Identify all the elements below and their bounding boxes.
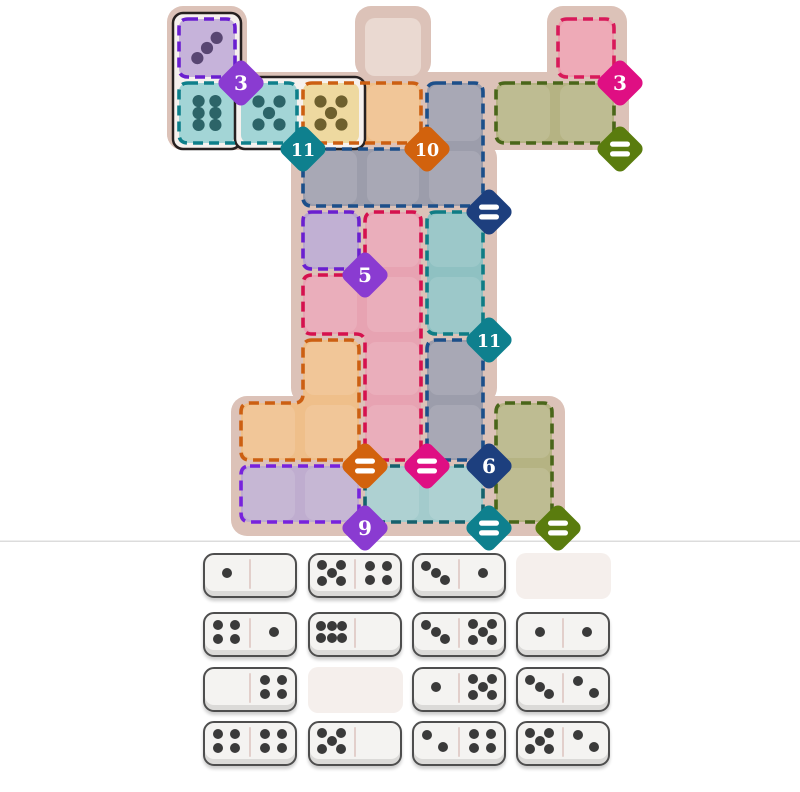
domino-pip: [365, 561, 375, 571]
domino-pip: [230, 729, 240, 739]
domino-pip: [230, 634, 240, 644]
domino-pip: [469, 743, 479, 753]
domino-pip: [222, 568, 232, 578]
domino-pip: [478, 568, 488, 578]
tray-domino-5-2[interactable]: [516, 721, 610, 766]
domino-divider: [458, 673, 460, 703]
domino-pip: [478, 682, 488, 692]
domino-pip: [213, 743, 223, 753]
tray-domino-1-5[interactable]: [412, 667, 506, 712]
domino-pip: [327, 568, 337, 578]
tray-domino-5-0[interactable]: [308, 721, 402, 766]
domino-pip: [421, 561, 431, 571]
domino-pip: [535, 682, 545, 692]
domino-pip: [269, 627, 279, 637]
domino-pip: [469, 729, 479, 739]
domino-pip: [544, 689, 554, 699]
domino-pip: [365, 575, 375, 585]
tray-domino-1-1[interactable]: [516, 612, 610, 657]
domino-pip: [486, 743, 496, 753]
domino-pip: [525, 675, 535, 685]
domino-pip: [260, 689, 270, 699]
domino-pip: [317, 576, 327, 586]
tray-domino-4-4[interactable]: [203, 721, 297, 766]
domino-pip: [230, 743, 240, 753]
domino-pip: [327, 736, 337, 746]
domino-pip: [336, 576, 346, 586]
domino-pip: [573, 730, 583, 740]
domino-pip: [440, 575, 450, 585]
domino-pip: [544, 744, 554, 754]
domino-pip: [213, 729, 223, 739]
domino-pip: [431, 682, 441, 692]
domino-pip: [213, 620, 223, 630]
domino-pip: [260, 675, 270, 685]
domino-pip: [544, 728, 554, 738]
domino-pip: [230, 620, 240, 630]
domino-pip: [336, 744, 346, 754]
domino-pip: [468, 635, 478, 645]
domino-pip: [277, 689, 287, 699]
domino-divider: [249, 673, 251, 703]
domino-pip: [382, 561, 392, 571]
domino-pip: [336, 560, 346, 570]
domino-pip: [582, 627, 592, 637]
domino-pip: [525, 728, 535, 738]
domino-divider: [562, 727, 564, 757]
domino-pip: [431, 568, 441, 578]
tray-domino-1-0[interactable]: [203, 553, 297, 598]
domino-pip: [487, 619, 497, 629]
domino-pip: [382, 575, 392, 585]
domino-divider: [354, 727, 356, 757]
domino-pip: [487, 690, 497, 700]
domino-pip: [422, 730, 432, 740]
domino-tray: [0, 0, 800, 792]
domino-pip: [260, 729, 270, 739]
domino-pip: [525, 744, 535, 754]
domino-pip: [316, 633, 326, 643]
domino-pip: [317, 728, 327, 738]
domino-pip: [337, 633, 347, 643]
domino-pip: [213, 634, 223, 644]
tray-domino-3-5[interactable]: [412, 612, 506, 657]
domino-pip: [468, 690, 478, 700]
domino-pip: [431, 627, 441, 637]
domino-pip: [486, 729, 496, 739]
domino-divider: [249, 618, 251, 648]
domino-pip: [487, 674, 497, 684]
domino-divider: [458, 727, 460, 757]
domino-pip: [573, 676, 583, 686]
domino-divider: [354, 618, 356, 648]
domino-pip: [589, 742, 599, 752]
tray-domino-6-0[interactable]: [308, 612, 402, 657]
tray-domino-3-2[interactable]: [516, 667, 610, 712]
tray-domino-5-4[interactable]: [308, 553, 402, 598]
domino-pip: [468, 674, 478, 684]
domino-pip: [535, 736, 545, 746]
tray-domino-0-4[interactable]: [203, 667, 297, 712]
domino-puzzle-screen: 31110351169: [0, 0, 800, 792]
domino-pip: [277, 675, 287, 685]
domino-pip: [478, 627, 488, 637]
domino-pip: [468, 619, 478, 629]
domino-pip: [317, 560, 327, 570]
tray-slot-empty: [308, 667, 403, 713]
domino-pip: [327, 621, 337, 631]
domino-pip: [438, 742, 448, 752]
tray-domino-3-1[interactable]: [412, 553, 506, 598]
tray-slot-empty: [516, 553, 611, 599]
domino-pip: [337, 621, 347, 631]
domino-divider: [249, 559, 251, 589]
domino-pip: [589, 688, 599, 698]
tray-domino-4-1[interactable]: [203, 612, 297, 657]
domino-divider: [562, 673, 564, 703]
tray-domino-2-4[interactable]: [412, 721, 506, 766]
domino-pip: [421, 620, 431, 630]
domino-pip: [487, 635, 497, 645]
domino-pip: [317, 744, 327, 754]
domino-pip: [316, 621, 326, 631]
domino-pip: [535, 627, 545, 637]
domino-pip: [277, 743, 287, 753]
domino-divider: [249, 727, 251, 757]
domino-divider: [562, 618, 564, 648]
domino-pip: [327, 633, 337, 643]
domino-pip: [277, 729, 287, 739]
domino-divider: [458, 559, 460, 589]
domino-divider: [458, 618, 460, 648]
domino-divider: [354, 559, 356, 589]
domino-pip: [260, 743, 270, 753]
domino-pip: [336, 728, 346, 738]
domino-pip: [440, 634, 450, 644]
